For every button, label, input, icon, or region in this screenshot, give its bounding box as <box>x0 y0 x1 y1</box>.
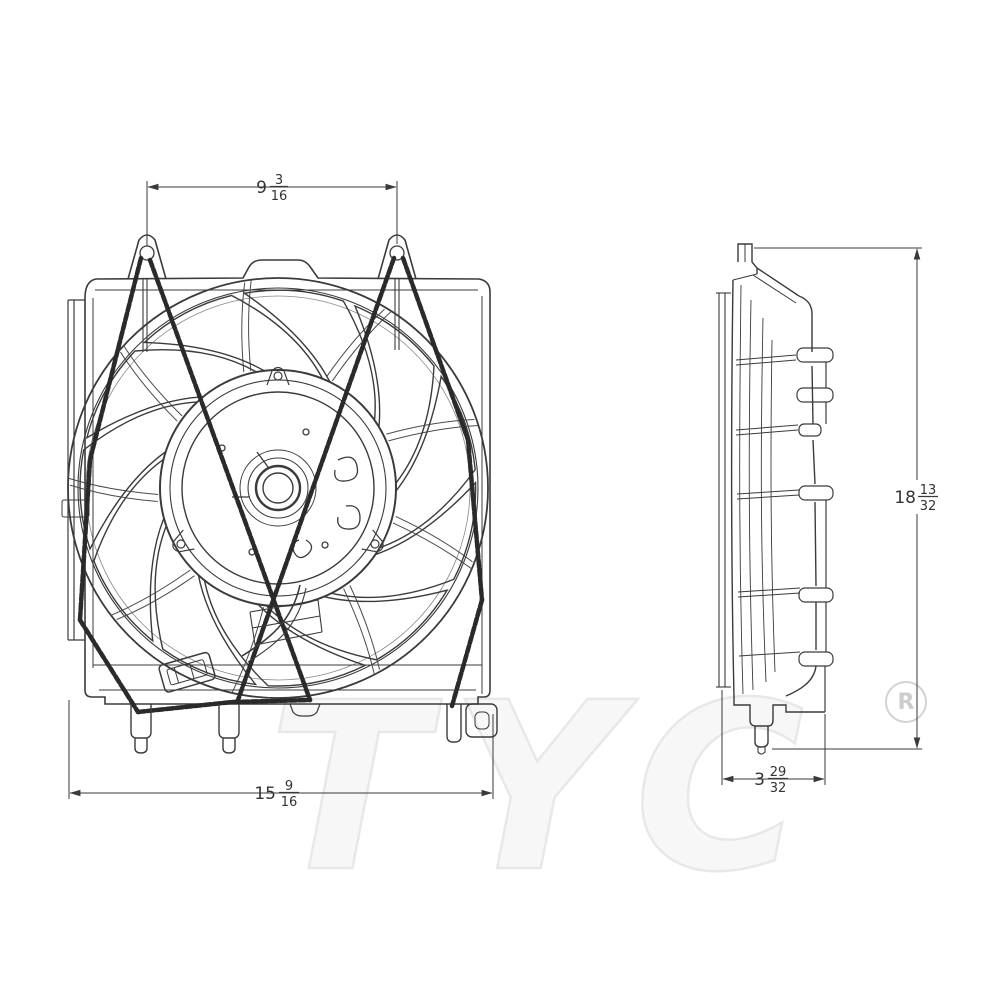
side-foot <box>734 697 825 754</box>
dimension-front-overall-width: 15 9 16 <box>69 700 493 810</box>
side-body <box>732 244 833 754</box>
side-view <box>716 244 833 754</box>
dimension-front-mount-hole-spacing: 9 3 16 <box>147 173 397 246</box>
side-crossbars <box>736 355 800 656</box>
dim-top-whole: 9 <box>256 178 267 198</box>
dim-depth-whole: 3 <box>754 770 765 790</box>
technical-drawing-page: TYC R <box>0 0 1000 1000</box>
dim-height-denominator: 32 <box>920 499 937 514</box>
dim-bottom-denominator: 16 <box>281 795 298 810</box>
dim-top-denominator: 16 <box>271 189 288 204</box>
side-left-flange <box>716 293 731 687</box>
dim-top-numerator: 3 <box>275 173 283 188</box>
technical-drawing-svg: 9 3 16 15 9 16 <box>0 0 1000 1000</box>
front-view <box>38 235 508 753</box>
dim-depth-numerator: 29 <box>770 765 787 780</box>
motor-hub <box>160 368 396 607</box>
dim-depth-denominator: 32 <box>770 781 787 796</box>
mounting-feet <box>131 704 497 753</box>
dim-bottom-numerator: 9 <box>285 779 293 794</box>
drawing-layer: 9 3 16 15 9 16 <box>0 0 1000 1000</box>
dimension-overall-height: 18 13 32 <box>754 248 942 749</box>
dim-height-numerator: 13 <box>920 483 937 498</box>
connector <box>158 652 216 693</box>
dim-bottom-whole: 15 <box>254 784 276 804</box>
dim-height-whole: 18 <box>894 488 916 508</box>
